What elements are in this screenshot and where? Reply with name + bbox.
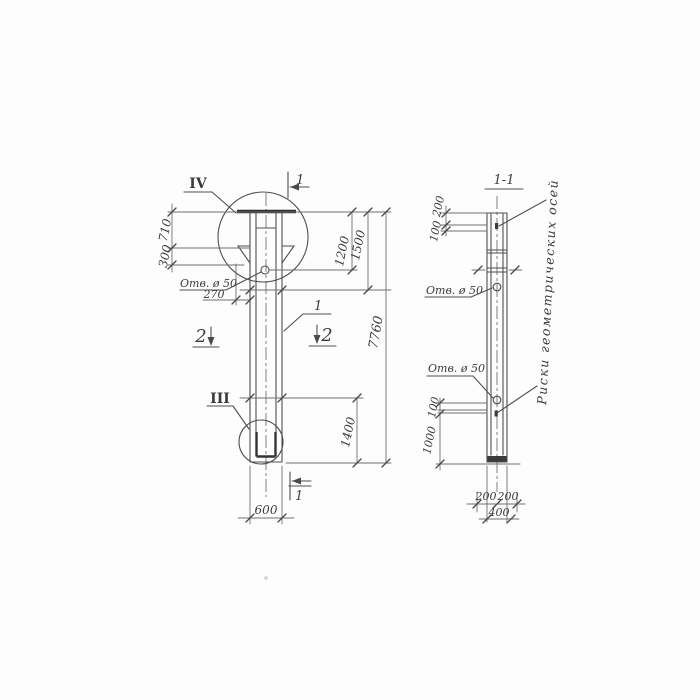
dim-200-bottom-left: 200: [475, 490, 497, 503]
hole-label-lower-section: Отв. ø 50: [428, 362, 485, 375]
section-arrowheads: [208, 184, 321, 485]
head-wedge-right: [282, 246, 294, 263]
scan-smudge: [264, 576, 268, 580]
dim-7760: 7760: [366, 315, 387, 350]
dim-200-bottom-right: 200: [497, 490, 519, 503]
dim-400-bottom: 400: [488, 506, 510, 519]
dim-1400: 1400: [338, 415, 358, 448]
section-view-1-1: 1-1 200 100 Отв. ø 50 Отв. ø 50 100 1000…: [420, 173, 561, 523]
part-callout-1: 1: [314, 299, 322, 314]
section-label-2-left: 2: [194, 326, 206, 347]
detail-circle-top: [218, 192, 308, 282]
hole-upper: [261, 266, 269, 274]
axes-note: Риски геометрических осей: [534, 179, 561, 407]
axis-mark-upper: [495, 223, 498, 229]
head-wedge-left: [238, 246, 250, 263]
section-title: 1-1: [494, 173, 515, 188]
section-bottom-solid-end: [488, 456, 507, 462]
detail-marker-iv: IV: [189, 176, 208, 192]
dim-100-top: 100: [427, 220, 444, 243]
drawing-canvas: IV III 1 1 2 2 1 Отв. ø 50 710 300 270 1…: [0, 0, 700, 700]
hole-label-upper-section: Отв. ø 50: [426, 284, 483, 297]
left-view: IV III 1 1 2 2 1 Отв. ø 50 710 300 270 1…: [156, 172, 391, 524]
dim-1500: 1500: [348, 228, 368, 261]
dim-1000: 1000: [420, 425, 439, 455]
detail-marker-iii: III: [210, 391, 230, 407]
axis-mark-lower: [495, 411, 498, 417]
dim-600: 600: [255, 503, 278, 517]
dim-270: 270: [203, 288, 225, 301]
section-label-1-bottom: 1: [295, 489, 303, 504]
section-label-2-right: 2: [320, 325, 332, 346]
section-label-1-top: 1: [296, 173, 304, 188]
